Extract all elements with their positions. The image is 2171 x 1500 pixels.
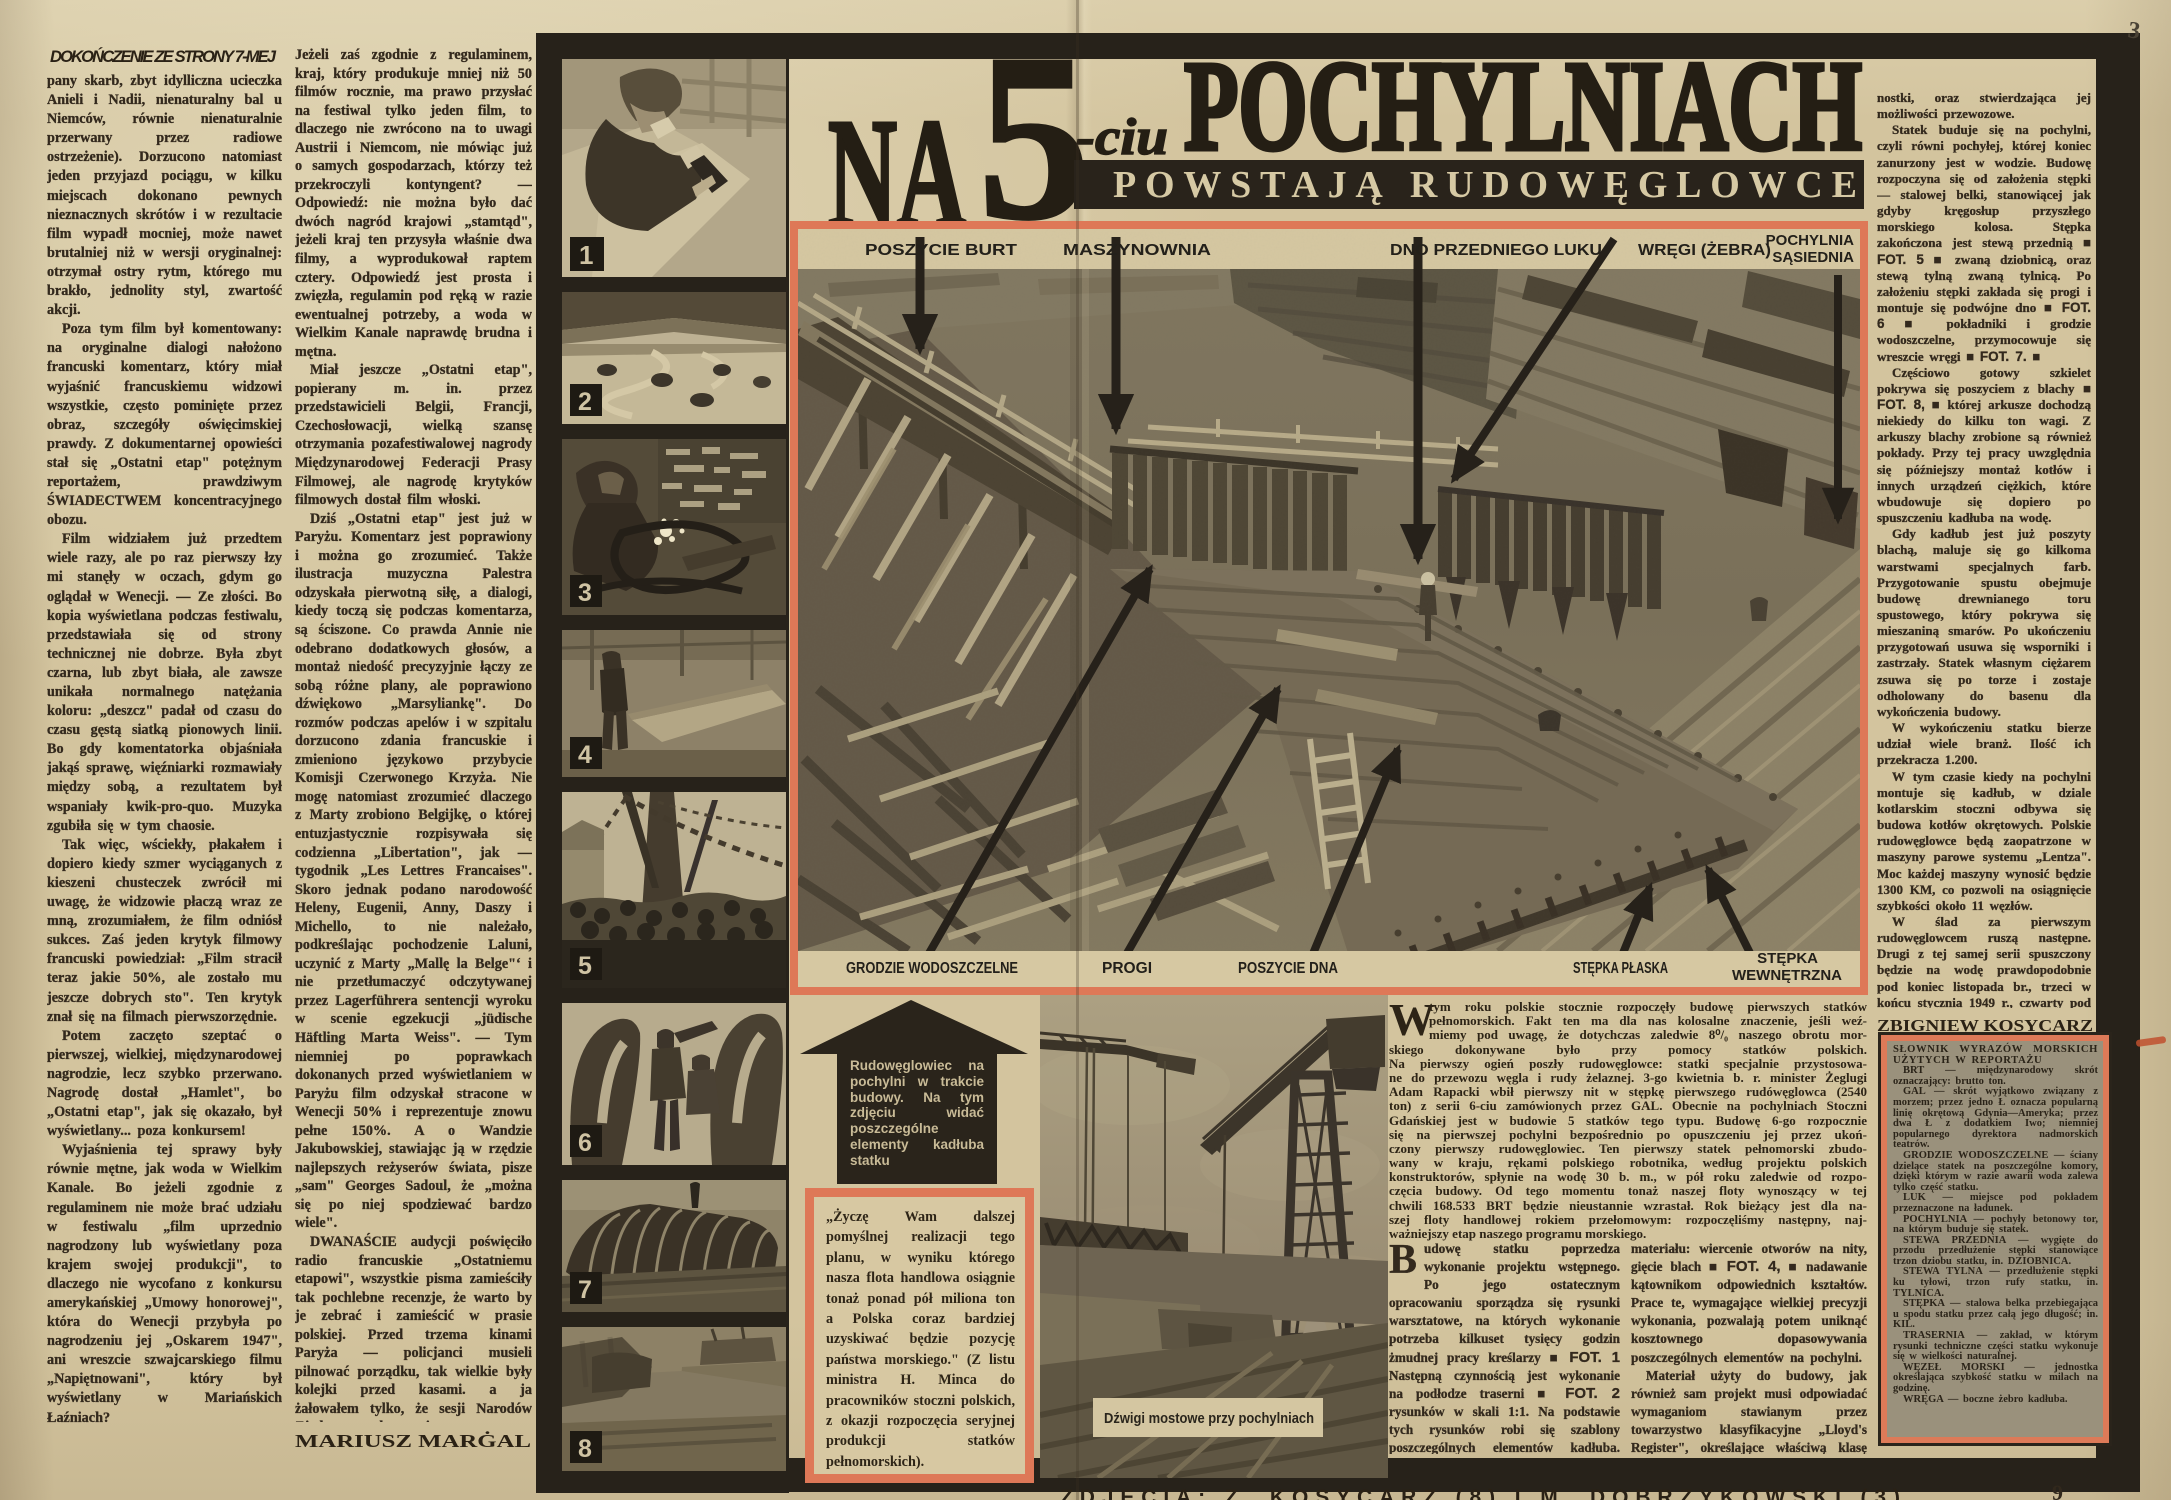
svg-text:-ciu: -ciu (1076, 110, 1168, 162)
svg-text:7: 7 (578, 1276, 592, 1304)
svg-text:8: 8 (578, 1435, 592, 1463)
svg-text:MASZYNOWNIA: MASZYNOWNIA (1063, 242, 1211, 259)
svg-text:5: 5 (578, 952, 592, 980)
svg-text:3: 3 (578, 579, 592, 607)
svg-text:DNO PRZEDNIEGO LUKU: DNO PRZEDNIEGO LUKU (1390, 242, 1602, 259)
svg-text:SĄSIEDNIA: SĄSIEDNIA (1772, 249, 1854, 266)
svg-text:ZDJĘCIA: Z. KOSYCARZ (8) I M.: ZDJĘCIA: Z. KOSYCARZ (8) I M. DOBRZYKOWS… (1060, 1488, 1900, 1500)
svg-text:1: 1 (579, 240, 593, 270)
svg-text:DOKOŃCZENIE ZE STRONY 7-MEJ: DOKOŃCZENIE ZE STRONY 7-MEJ (50, 47, 277, 66)
svg-text:POSZYCIE DNA: POSZYCIE DNA (1238, 960, 1338, 977)
svg-text:PROGI: PROGI (1102, 960, 1152, 977)
svg-text:POCHYLNIA: POCHYLNIA (1766, 232, 1855, 249)
svg-text:POSZYCIE BURT: POSZYCIE BURT (865, 242, 1018, 259)
svg-text:NA: NA (828, 112, 966, 232)
svg-text:GRODZIE WODOSZCZELNE: GRODZIE WODOSZCZELNE (846, 960, 1018, 977)
svg-text:STĘPKA: STĘPKA (1757, 950, 1818, 967)
svg-text:POWSTAJĄ RUDOWĘGLOWCE: POWSTAJĄ RUDOWĘGLOWCE (1113, 164, 1857, 206)
svg-text:WRĘGI (ŻEBRA): WRĘGI (ŻEBRA) (1638, 242, 1771, 259)
svg-text:4: 4 (578, 741, 592, 769)
svg-text:2: 2 (578, 388, 592, 416)
svg-text:Dźwigi mostowe przy pochylniac: Dźwigi mostowe przy pochylniach (1104, 1410, 1314, 1427)
svg-text:STĘPKA PŁASKA: STĘPKA PŁASKA (1573, 960, 1668, 977)
svg-text:MARIUSZ MARĠAL: MARIUSZ MARĠAL (295, 1430, 531, 1451)
svg-text:6: 6 (578, 1129, 592, 1157)
svg-text:POCHYLNIACH: POCHYLNIACH (1184, 55, 1862, 155)
svg-text:WEWNĘTRZNA: WEWNĘTRZNA (1732, 967, 1842, 984)
